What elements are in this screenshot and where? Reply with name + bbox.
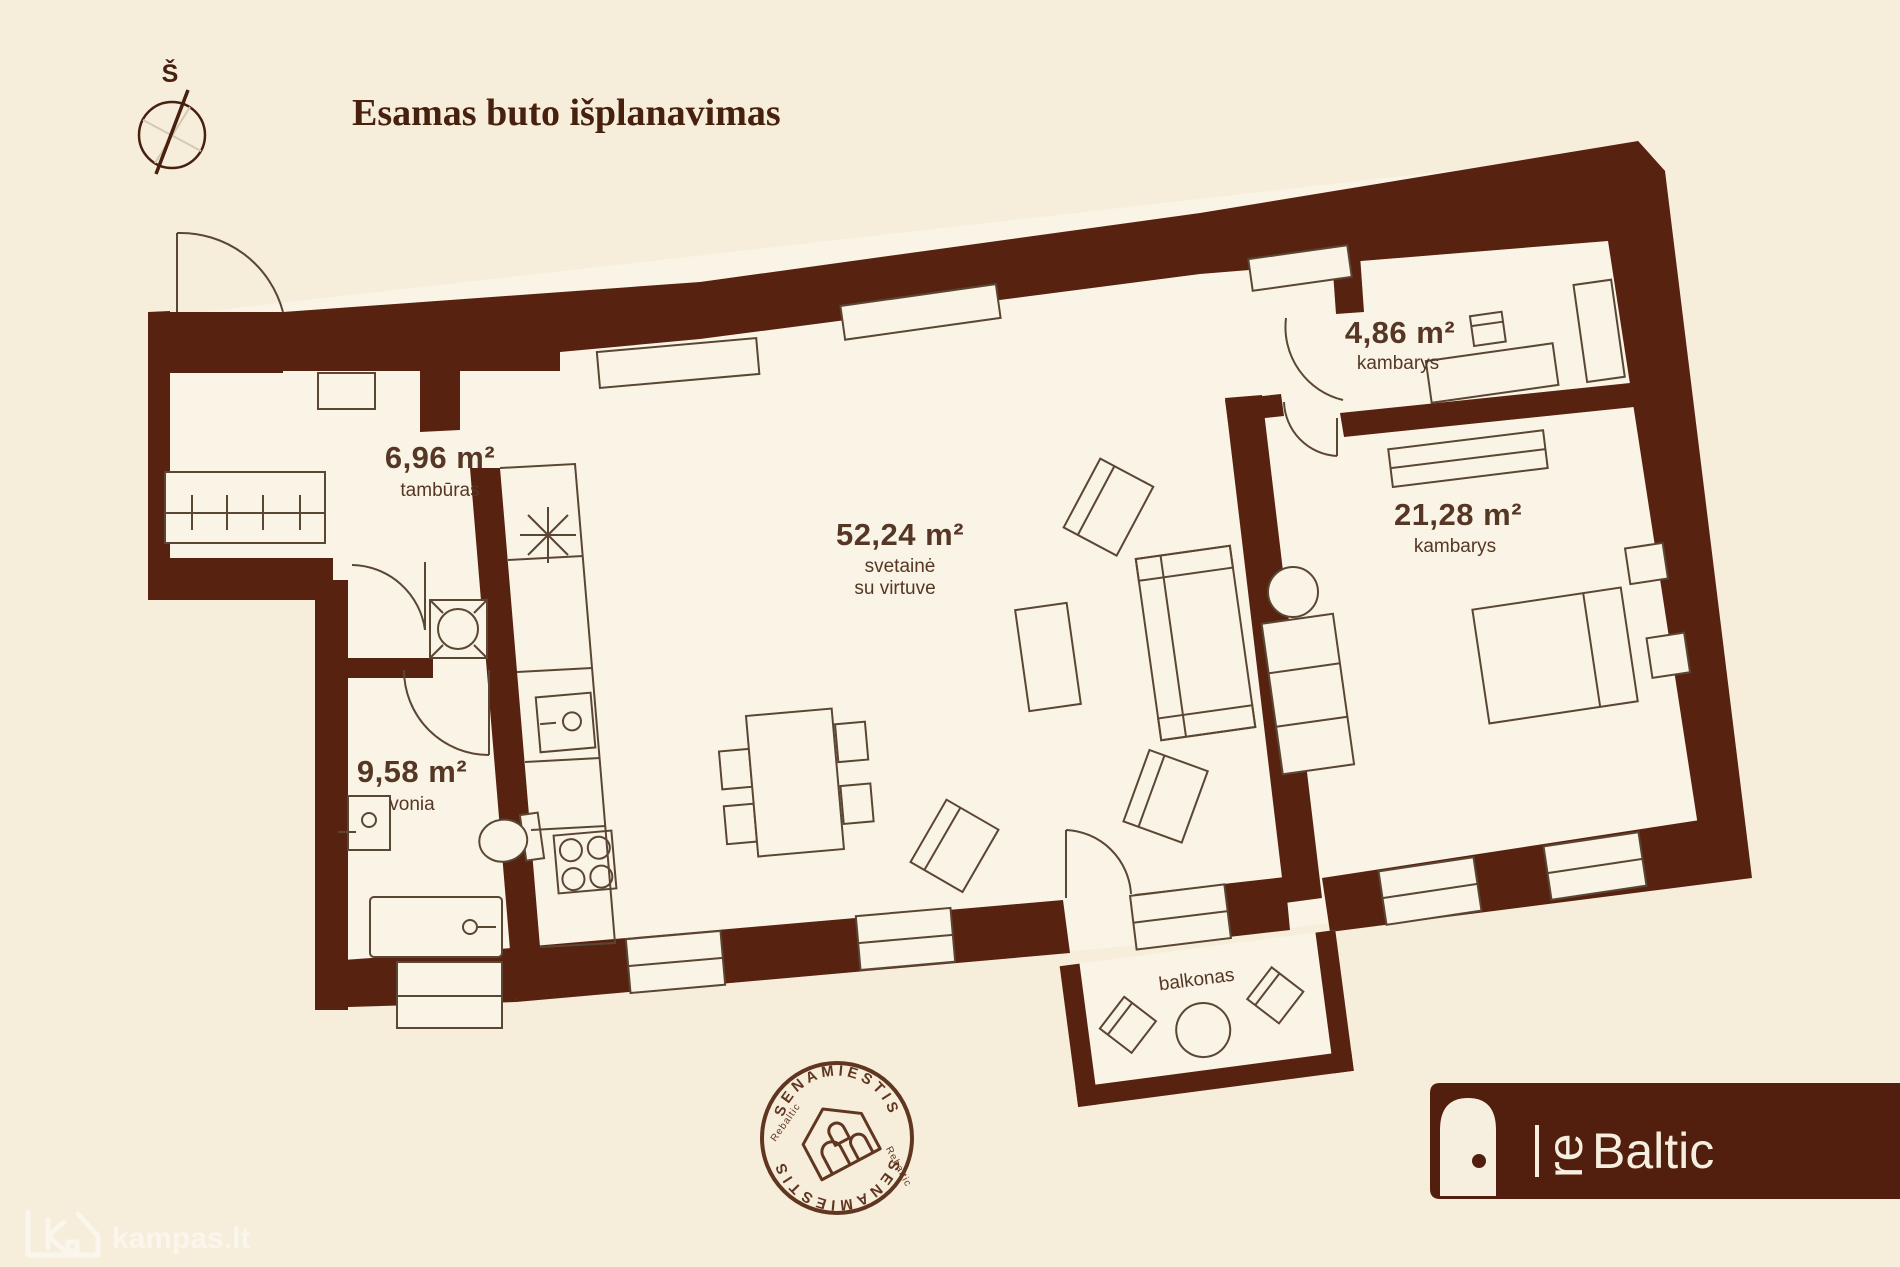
svg-text:52,24 m²: 52,24 m²: [836, 517, 964, 552]
svg-text:21,28 m²: 21,28 m²: [1394, 497, 1522, 532]
window: [397, 962, 502, 1028]
window: [856, 908, 955, 970]
cooktop-star-icon: [520, 507, 576, 563]
north-label: Š: [162, 58, 179, 88]
logo-re: re: [1537, 1134, 1593, 1178]
floor-plan-page: balkonas 6,96 m² tambūras 9,58 m² vonia …: [0, 0, 1900, 1267]
nightstand: [1625, 543, 1668, 584]
svg-text:su virtuve: su virtuve: [854, 578, 935, 599]
door-icon: [1440, 1098, 1496, 1196]
dining-table: [746, 709, 844, 857]
kampas-text: kampas.lt: [112, 1222, 250, 1255]
desk-chair: [1470, 312, 1506, 346]
window: [1130, 884, 1231, 949]
chair: [835, 722, 868, 762]
rebaltic-logo: re Baltic: [1430, 1083, 1900, 1199]
chair: [719, 749, 752, 789]
chair: [724, 804, 757, 844]
window: [626, 931, 725, 993]
logo-baltic: Baltic: [1592, 1123, 1714, 1179]
svg-text:tambūras: tambūras: [400, 480, 479, 501]
svg-text:6,96 m²: 6,96 m²: [385, 440, 495, 475]
coat-rack: [165, 472, 325, 543]
hall-cabinet: [318, 373, 375, 409]
floor-plan-svg: balkonas 6,96 m² tambūras 9,58 m² vonia …: [0, 0, 1900, 1267]
room-label-kambarys-small: 4,86 m² kambarys: [1345, 315, 1455, 374]
svg-text:9,58 m²: 9,58 m²: [357, 754, 467, 789]
room-label-tamburas: 6,96 m² tambūras: [385, 440, 495, 501]
chair: [840, 783, 873, 823]
svg-text:kambarys: kambarys: [1414, 536, 1496, 557]
svg-text:svetainė: svetainė: [865, 556, 936, 577]
svg-text:kambarys: kambarys: [1357, 353, 1439, 374]
svg-text:vonia: vonia: [389, 794, 435, 815]
round-table: [1268, 567, 1318, 617]
bathtub: [370, 897, 502, 957]
page-title: Esamas buto išplanavimas: [352, 92, 781, 134]
washing-machine: [430, 600, 487, 658]
doorknob-icon: [1472, 1154, 1486, 1168]
svg-text:4,86 m²: 4,86 m²: [1345, 315, 1455, 350]
nightstand: [1647, 633, 1690, 678]
